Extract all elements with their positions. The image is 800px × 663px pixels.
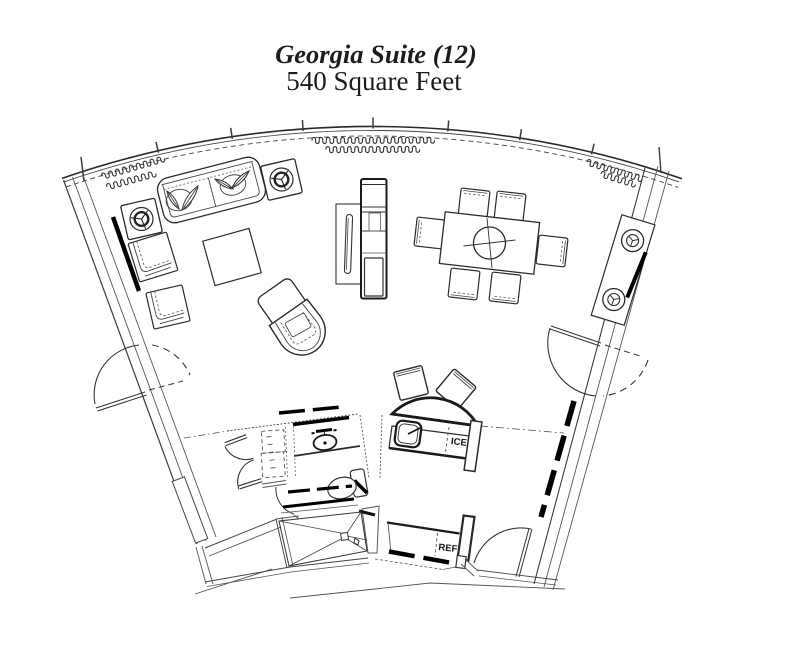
svg-text:ICE: ICE — [450, 436, 467, 449]
svg-text:Georgia Suite (12): Georgia Suite (12) — [275, 39, 477, 69]
svg-text:REF: REF — [438, 542, 458, 555]
svg-text:540 Square Feet: 540 Square Feet — [286, 66, 462, 96]
